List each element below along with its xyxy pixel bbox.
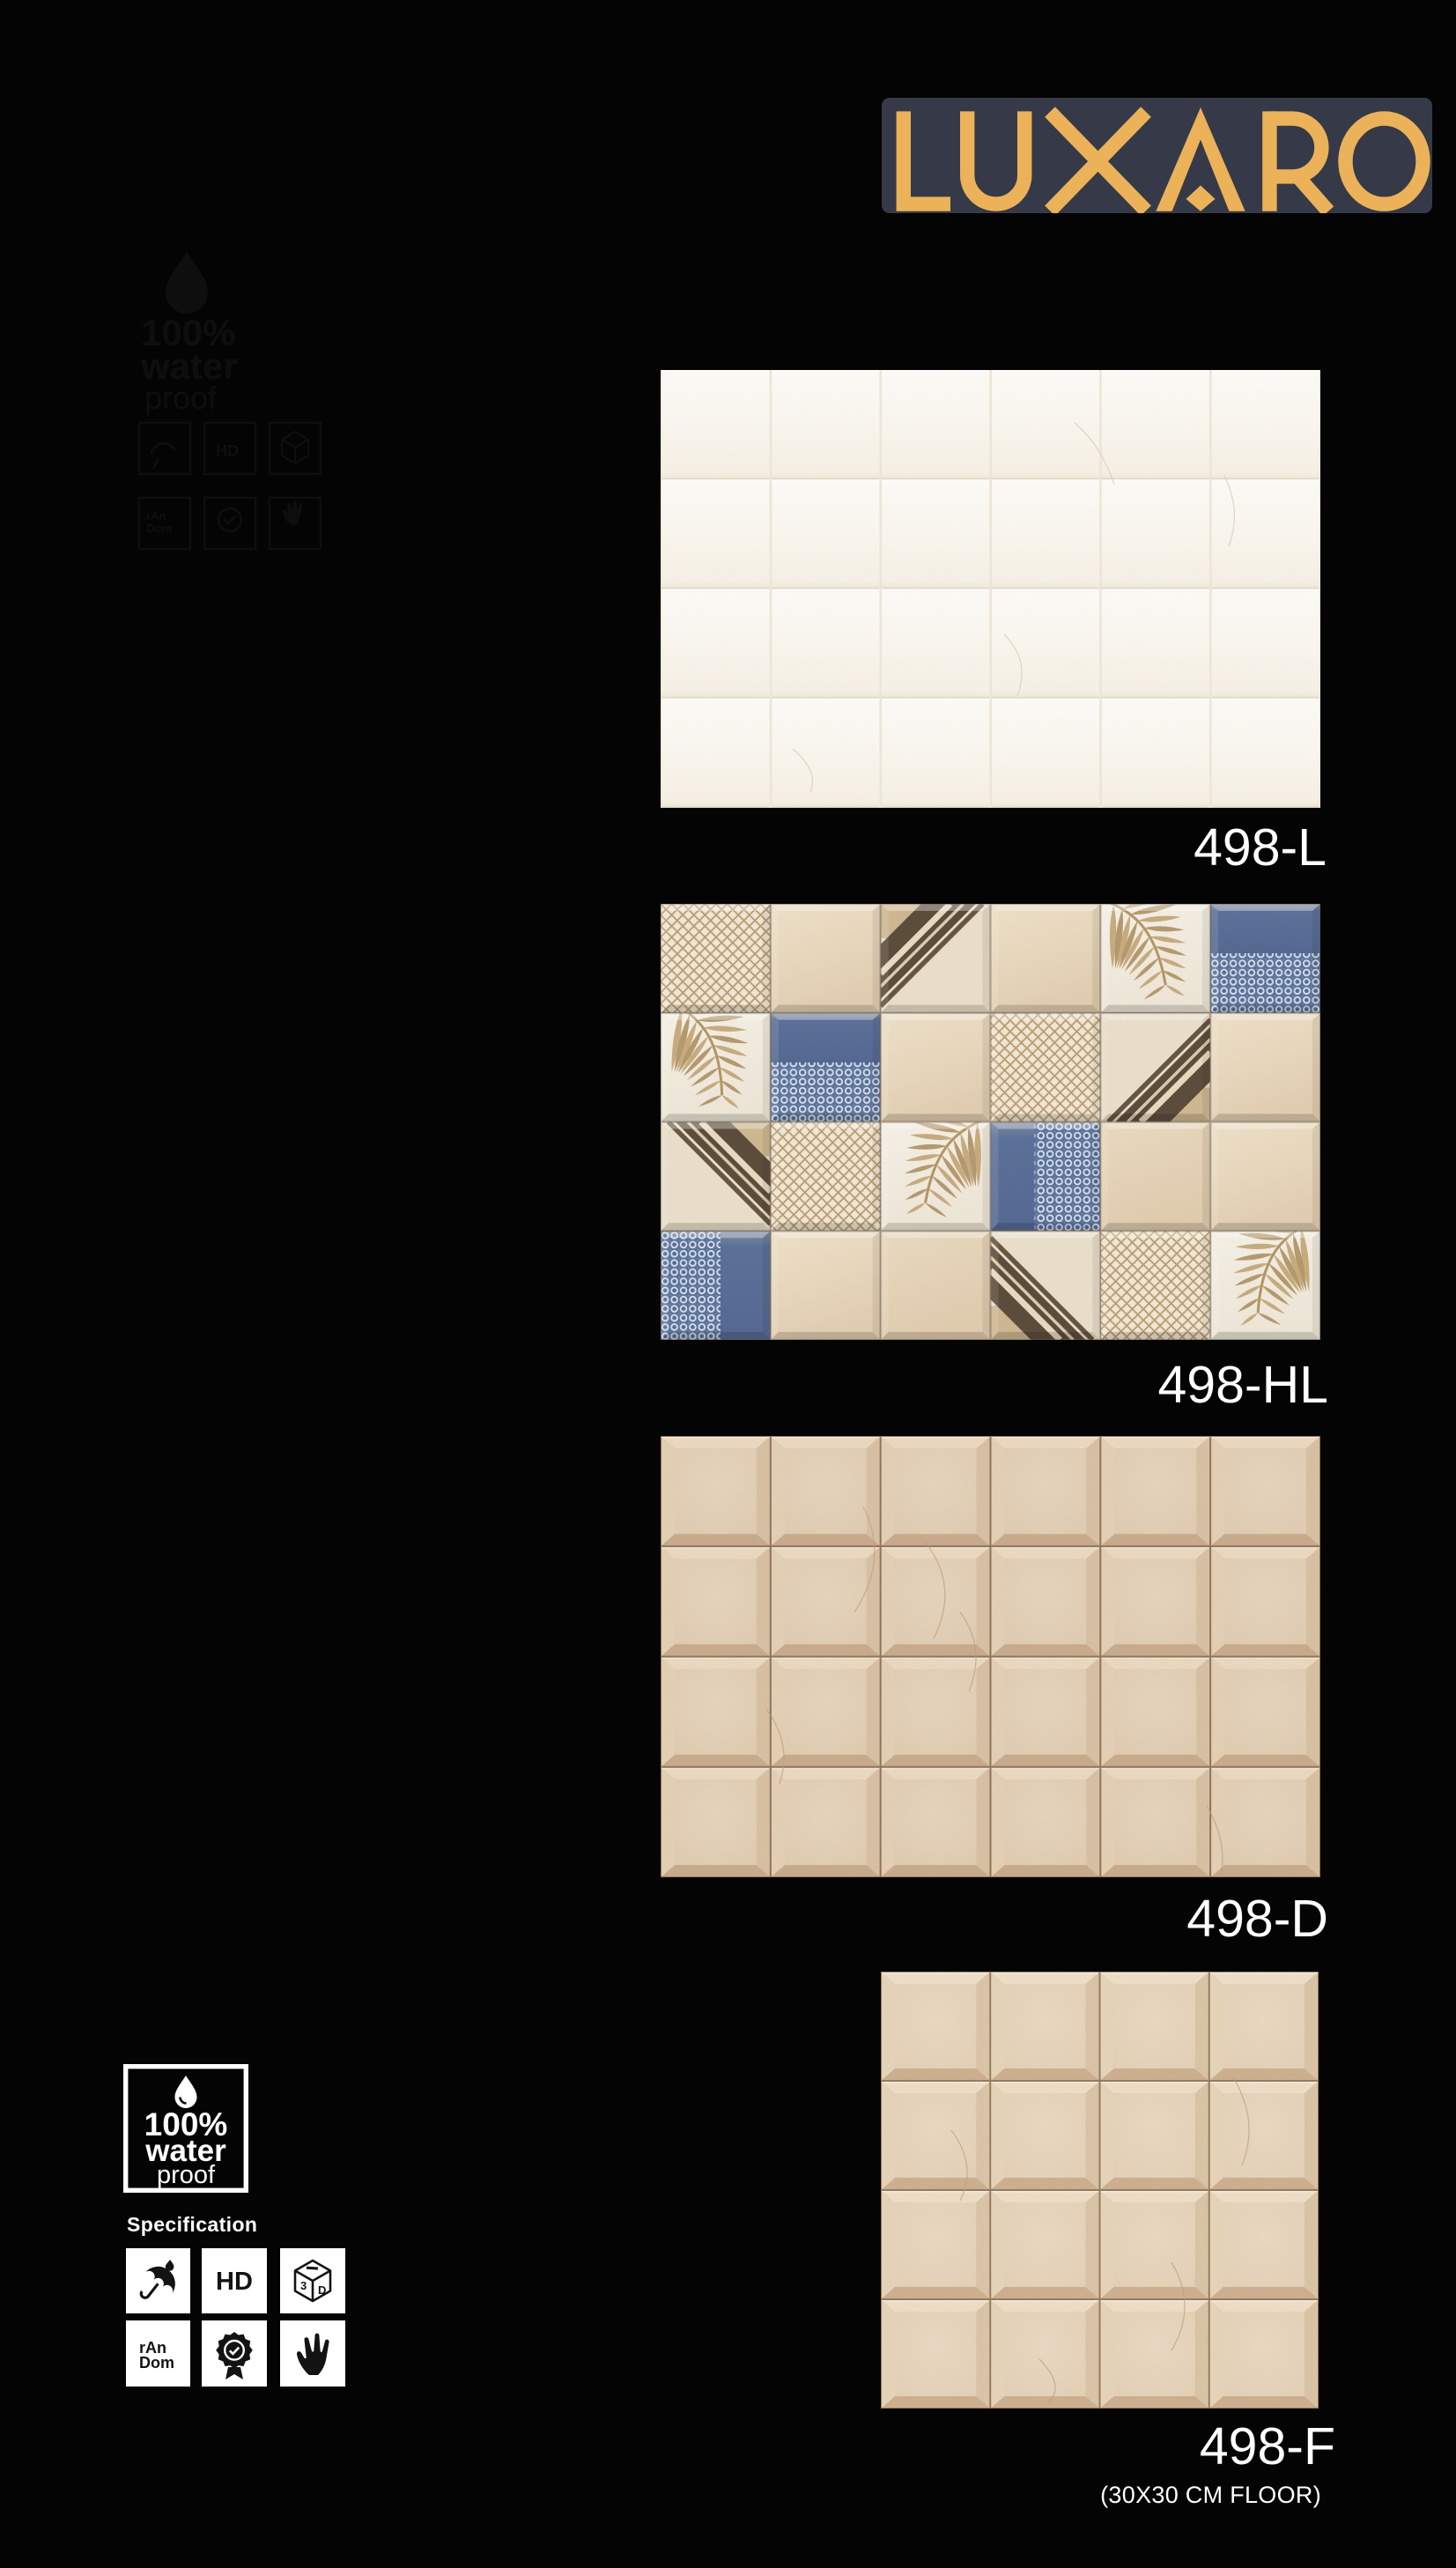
svg-text:Dom: Dom bbox=[146, 522, 172, 535]
svg-text:proof: proof bbox=[144, 380, 218, 416]
svg-text:rAn: rAn bbox=[146, 509, 166, 522]
svg-text:HD: HD bbox=[216, 2268, 253, 2296]
svg-text:proof: proof bbox=[157, 2161, 216, 2189]
svg-text:Dom: Dom bbox=[139, 2354, 174, 2372]
svg-text:HD: HD bbox=[216, 442, 239, 460]
svg-text:3: 3 bbox=[300, 2279, 307, 2292]
svg-text:D: D bbox=[318, 2283, 326, 2297]
